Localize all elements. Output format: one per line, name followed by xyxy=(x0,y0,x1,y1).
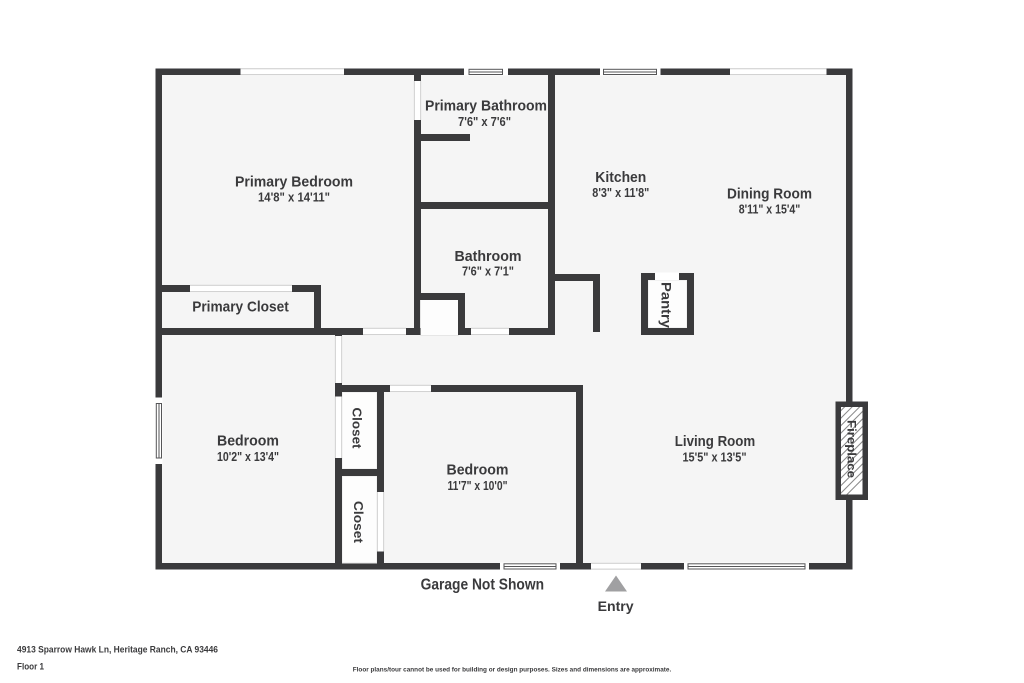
svg-text:Primary Bedroom: Primary Bedroom xyxy=(235,174,353,191)
svg-text:15'5" x 13'5": 15'5" x 13'5" xyxy=(683,451,747,465)
svg-text:8'3" x 11'8": 8'3" x 11'8" xyxy=(592,186,649,200)
svg-text:14'8" x 14'11": 14'8" x 14'11" xyxy=(258,191,330,205)
svg-text:Pantry: Pantry xyxy=(659,282,674,329)
svg-text:Bedroom: Bedroom xyxy=(447,462,509,479)
svg-text:11'7" x 10'0": 11'7" x 10'0" xyxy=(448,479,508,493)
svg-text:Bathroom: Bathroom xyxy=(455,248,522,265)
svg-text:Living Room: Living Room xyxy=(675,433,756,450)
svg-text:7'6" x 7'1": 7'6" x 7'1" xyxy=(462,265,514,279)
svg-text:Bedroom: Bedroom xyxy=(217,433,279,450)
svg-text:Closet: Closet xyxy=(351,501,366,544)
svg-text:Garage Not Shown: Garage Not Shown xyxy=(421,577,544,594)
svg-text:Primary Closet: Primary Closet xyxy=(192,299,289,316)
svg-text:8'11" x 15'4": 8'11" x 15'4" xyxy=(739,203,801,217)
svg-text:Fireplace: Fireplace xyxy=(845,420,859,478)
svg-text:4913 Sparrow Hawk Ln, Heritage: 4913 Sparrow Hawk Ln, Heritage Ranch, CA… xyxy=(17,645,218,655)
svg-text:Closet: Closet xyxy=(349,408,364,450)
svg-text:10'2" x 13'4": 10'2" x 13'4" xyxy=(217,450,279,464)
svg-text:Entry: Entry xyxy=(598,599,634,614)
svg-text:Kitchen: Kitchen xyxy=(595,169,646,186)
svg-text:Floor plans/tour cannot be use: Floor plans/tour cannot be used for buil… xyxy=(353,667,672,674)
svg-text:Dining Room: Dining Room xyxy=(727,186,812,203)
svg-text:7'6" x 7'6": 7'6" x 7'6" xyxy=(458,115,511,129)
svg-text:Primary Bathroom: Primary Bathroom xyxy=(425,98,547,115)
svg-text:Floor 1: Floor 1 xyxy=(17,662,44,672)
